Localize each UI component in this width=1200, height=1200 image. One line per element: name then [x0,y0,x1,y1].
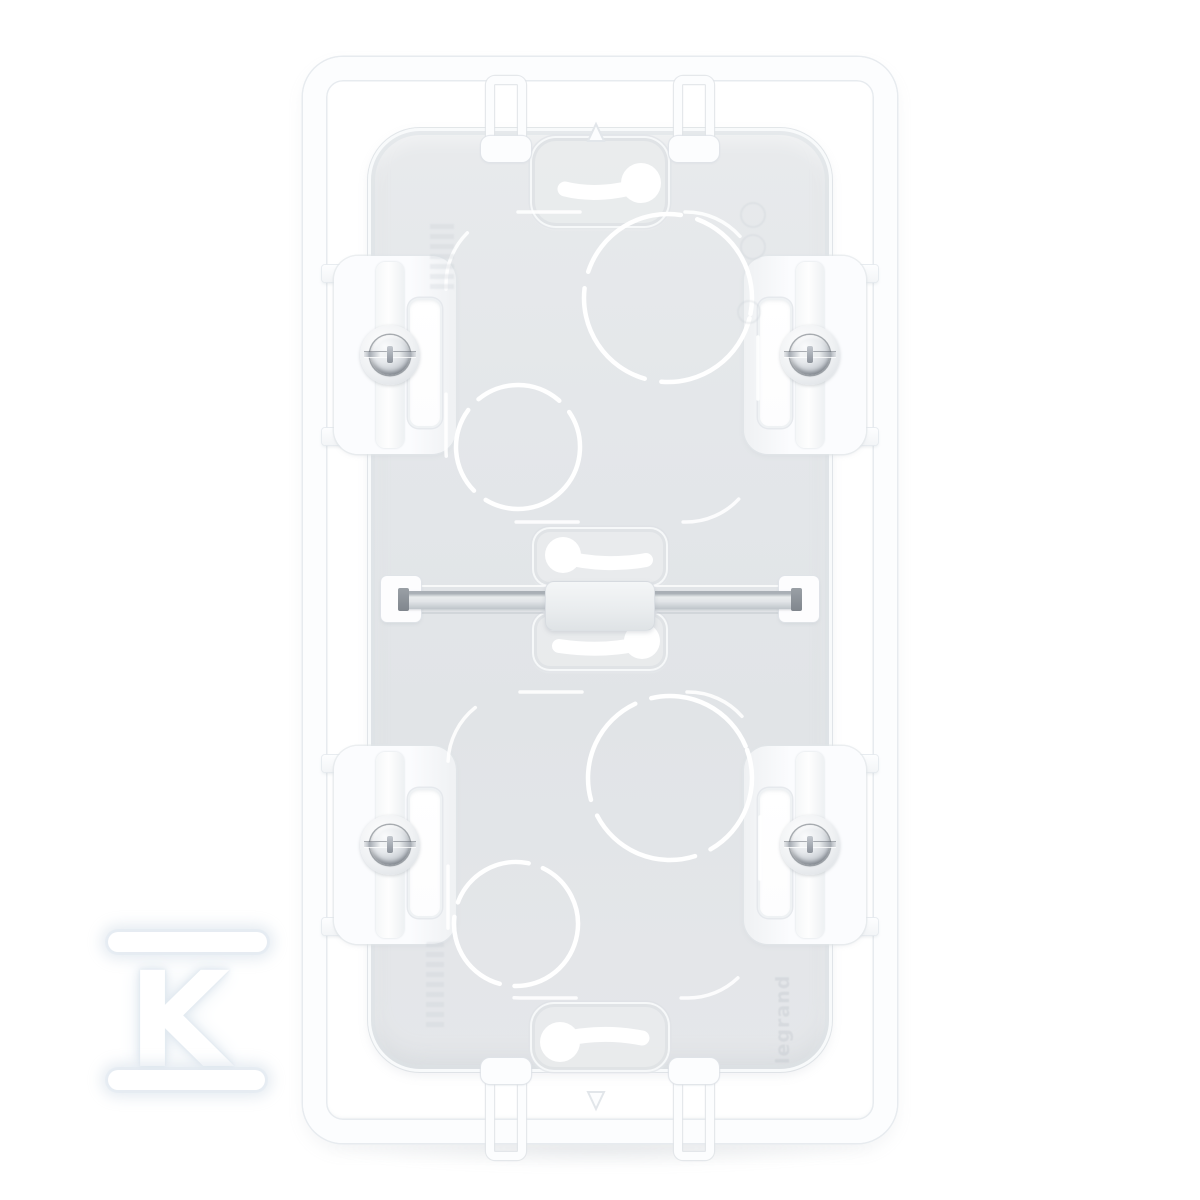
embossed-certification-icon [737,300,761,324]
clip-tab-foot [669,1058,719,1084]
clip-tab-foot [669,136,719,162]
keyhole-pocket [530,136,670,228]
screw-cross-recess [807,346,813,363]
bar-end-clip [791,588,802,611]
screw-cross-recess [387,836,393,853]
watermark-bottom-bar-icon [108,1070,265,1090]
clip-tab-foot [481,136,531,162]
keyhole-pocket [530,1002,670,1072]
bar-end-clip [398,588,409,611]
bar-center-block [545,581,655,631]
screw-cross-recess [387,346,393,363]
mounting-screw [780,815,840,875]
keyhole-pocket [532,527,668,587]
mounting-screw [780,325,840,385]
screw-cross-recess [807,836,813,853]
watermark-letter: K [128,955,230,1087]
clip-tab-foot [481,1058,531,1084]
mounting-screw [360,815,420,875]
embossed-marking [430,222,454,294]
embossed-brand-text: legrand [772,934,800,1064]
mounting-screw [360,325,420,385]
brand-watermark: K [100,925,280,1100]
embossed-certification-icon [740,202,766,228]
product-photo: K [0,0,1200,1200]
embossed-marking [426,942,444,1032]
embossed-certification-icon [740,234,766,260]
